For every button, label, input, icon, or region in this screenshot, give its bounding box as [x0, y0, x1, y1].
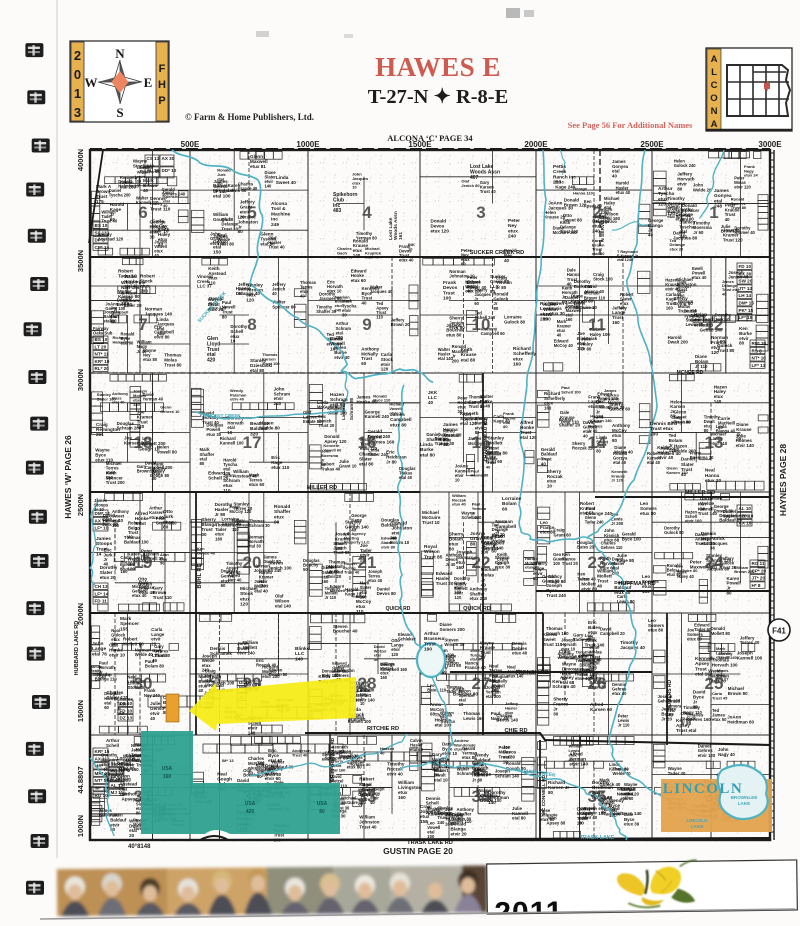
svg-text:6: 6	[138, 203, 147, 222]
svg-text:LF* 14: LF* 14	[95, 591, 109, 596]
svg-text:DennisGehresetux 40: DennisGehresetux 40	[612, 682, 627, 696]
svg-text:DouglasBates 20: DouglasBates 20	[577, 540, 595, 550]
svg-text:33: 33	[358, 787, 377, 806]
svg-text:VINCENT CREEK: VINCENT CREEK	[203, 413, 241, 418]
svg-text:CS 13: CS 13	[147, 156, 160, 161]
svg-text:WHIPPOORWILL RD: WHIPPOORWILL RD	[330, 737, 335, 782]
svg-text:18: 18	[134, 433, 153, 452]
svg-text:DennisGehresetux 40: DennisGehresetux 40	[512, 641, 528, 656]
svg-text:AL 15: AL 15	[147, 168, 160, 173]
svg-text:MILLER RD: MILLER RD	[307, 485, 337, 491]
svg-text:MichaelMcGuireTrust 10: MichaelMcGuireTrust 10	[422, 510, 441, 525]
svg-text:2: 2	[74, 48, 81, 63]
svg-text:F: F	[159, 63, 166, 75]
svg-text:LH 14: LH 14	[739, 293, 752, 298]
svg-text:7: 7	[138, 315, 147, 334]
svg-text:CalvinHasleretal 40: CalvinHasleretal 40	[410, 738, 424, 752]
svg-text:SherryJenichetvir 80: SherryJenichetvir 80	[449, 316, 465, 331]
svg-text:HAYNES PAGE 28: HAYNES PAGE 28	[778, 444, 788, 517]
svg-text:25: 25	[705, 674, 724, 693]
svg-text:TimothyDelangeetvir 100: TimothyDelangeetvir 100	[676, 207, 695, 222]
svg-text:PK* 15: PK* 15	[739, 308, 754, 313]
svg-text:AL 13: AL 13	[111, 783, 124, 788]
svg-text:1: 1	[709, 203, 718, 222]
svg-text:CH 13: CH 13	[95, 584, 108, 589]
svg-text:AL 10: AL 10	[739, 506, 752, 511]
svg-text:EdwardTader 60: EdwardTader 60	[694, 622, 712, 632]
svg-text:CHIE RD: CHIE RD	[505, 728, 528, 734]
svg-text:RS 8: RS 8	[752, 348, 763, 353]
svg-text:QUICK RD: QUICK RD	[463, 606, 491, 612]
svg-text:Lawrence: Lawrence	[341, 399, 346, 420]
svg-text:A: A	[711, 54, 718, 65]
svg-text:35: 35	[588, 787, 607, 806]
svg-text:3500N: 3500N	[76, 250, 85, 272]
svg-text:FD 10: FD 10	[739, 264, 752, 269]
svg-text:LF* 13: LF* 13	[752, 363, 766, 368]
svg-text:13: 13	[705, 433, 724, 452]
svg-text:NT* 11: NT* 11	[95, 352, 109, 357]
svg-text:2500N: 2500N	[76, 494, 85, 516]
svg-text:14: 14	[588, 433, 607, 452]
svg-text:USA: USA	[317, 801, 328, 807]
svg-text:AnthonyWelde 40: AnthonyWelde 40	[558, 651, 576, 660]
svg-text:C: C	[711, 80, 718, 91]
svg-text:RG 20: RG 20	[111, 768, 125, 773]
svg-text:1: 1	[74, 86, 81, 101]
svg-text:500E: 500E	[181, 140, 200, 149]
svg-text:KR* 15: KR* 15	[95, 749, 110, 754]
svg-text:2500E: 2500E	[640, 140, 664, 149]
svg-text:TRASK LAKE: TRASK LAKE	[580, 835, 615, 841]
svg-text:AX 10: AX 10	[95, 518, 108, 523]
svg-text:ArthurSchell: ArthurSchell	[106, 738, 120, 748]
svg-text:34: 34	[472, 787, 491, 806]
svg-text:USA: USA	[162, 766, 173, 772]
svg-text:4: 4	[362, 203, 372, 222]
svg-text:BS 10: BS 10	[95, 337, 108, 342]
svg-text:DM* 15: DM* 15	[739, 301, 755, 306]
svg-text:2000E: 2000E	[524, 140, 548, 149]
svg-text:21: 21	[358, 553, 377, 572]
svg-text:W: W	[85, 75, 98, 90]
svg-text:A: A	[711, 119, 718, 130]
svg-text:27: 27	[472, 674, 491, 693]
svg-text:40°8148: 40°8148	[128, 844, 151, 850]
svg-text:See Page 56 For Additional Nam: See Page 56 For Additional Names	[568, 120, 693, 130]
svg-text:N: N	[711, 106, 718, 117]
svg-text:44.8807: 44.8807	[76, 766, 85, 793]
svg-text:H* 8: H* 8	[752, 583, 761, 588]
svg-text:1000N: 1000N	[76, 815, 85, 837]
svg-text:LF* 15: LF* 15	[739, 315, 753, 320]
svg-text:2: 2	[592, 203, 601, 222]
svg-text:420: 420	[246, 809, 255, 815]
svg-text:LAKE: LAKE	[690, 824, 704, 830]
svg-text:WilliamRoczaketux 40: WilliamRoczaketux 40	[452, 493, 467, 507]
svg-text:LT 20: LT 20	[95, 344, 107, 349]
svg-text:9: 9	[362, 315, 371, 334]
svg-text:17: 17	[243, 433, 262, 452]
svg-text:TRASK LAKE RD: TRASK LAKE RD	[407, 840, 453, 846]
svg-text:USA: USA	[245, 801, 256, 807]
svg-text:RobertKarsenetal 40: RobertKarsenetal 40	[647, 451, 662, 465]
svg-text:HAWES E: HAWES E	[375, 52, 501, 82]
svg-text:RichardHaley 60: RichardHaley 60	[113, 335, 130, 344]
svg-text:AX 30: AX 30	[739, 271, 752, 276]
svg-text:24: 24	[705, 553, 724, 572]
svg-text:16: 16	[358, 433, 377, 452]
svg-text:AX 30: AX 30	[162, 156, 175, 161]
svg-text:HR* 10: HR* 10	[739, 513, 754, 518]
svg-text:LAKE: LAKE	[738, 801, 751, 806]
svg-text:30: 30	[134, 674, 153, 693]
svg-text:MCNEE RD: MCNEE RD	[677, 370, 704, 376]
svg-text:MichaelGebersetux 40: MichaelGebersetux 40	[132, 584, 147, 598]
svg-text:RobertKrameretal 53: RobertKrameretal 53	[580, 501, 596, 516]
svg-text:0: 0	[74, 67, 81, 82]
svg-text:FRENCH RD: FRENCH RD	[516, 670, 549, 676]
svg-text:LINCOLN: LINCOLN	[686, 818, 708, 824]
svg-text:DZ 10: DZ 10	[120, 701, 133, 706]
svg-text:N: N	[115, 46, 125, 61]
svg-text:RG 10: RG 10	[95, 793, 109, 798]
svg-text:SL 13: SL 13	[95, 230, 108, 235]
svg-text:ThomasTader 40: ThomasTader 40	[446, 685, 463, 695]
svg-text:BS 10: BS 10	[95, 223, 108, 228]
svg-text:3000N: 3000N	[76, 369, 85, 391]
svg-text:RP* 20: RP* 20	[752, 341, 767, 346]
svg-text:NT* 10: NT* 10	[752, 356, 767, 361]
svg-text:CP* 14: CP* 14	[95, 245, 110, 250]
svg-text:1500E: 1500E	[408, 140, 432, 149]
svg-text:JT* 20: JT* 20	[752, 576, 766, 581]
svg-text:3000E: 3000E	[758, 140, 782, 149]
svg-text:F41: F41	[772, 627, 786, 636]
svg-text:RonaldGorzyaetal 40: RonaldGorzyaetal 40	[613, 451, 628, 465]
svg-text:MC CONNELL RD: MC CONNELL RD	[541, 774, 547, 815]
svg-text:DianeBolamJr 110: DianeBolamJr 110	[695, 354, 709, 369]
svg-text:26: 26	[588, 674, 607, 693]
svg-text:AX 11: AX 11	[95, 756, 108, 761]
svg-text:NT* 15: NT* 15	[95, 778, 110, 783]
svg-text:GUSTIN PAGE 20: GUSTIN PAGE 20	[383, 846, 453, 856]
svg-text:1500N: 1500N	[76, 700, 85, 722]
svg-text:3: 3	[74, 105, 81, 120]
svg-text:IM* 13: IM* 13	[222, 758, 234, 763]
svg-text:11: 11	[588, 315, 606, 334]
svg-text:S: S	[116, 105, 123, 120]
svg-text:P: P	[158, 95, 165, 107]
svg-text:20: 20	[243, 553, 262, 572]
svg-text:DP 8: DP 8	[95, 238, 106, 243]
svg-text:SUCKER CREEK RD: SUCKER CREEK RD	[470, 250, 524, 256]
svg-text:RITCHIE RD: RITCHIE RD	[367, 726, 399, 732]
svg-text:E: E	[144, 75, 153, 90]
svg-text:H: H	[158, 79, 166, 91]
svg-text:QUICK RD: QUICK RD	[386, 606, 411, 612]
svg-text:12: 12	[705, 315, 724, 334]
svg-text:MJ 11: MJ 11	[111, 790, 124, 795]
svg-text:KR* 10: KR* 10	[95, 359, 110, 364]
svg-text:DZ 13: DZ 13	[120, 716, 133, 721]
svg-text:SW 20: SW 20	[739, 279, 753, 284]
svg-text:Schram 80: Schram 80	[349, 397, 354, 420]
svg-text:15: 15	[472, 433, 491, 452]
svg-text:22: 22	[472, 553, 491, 572]
svg-text:BUHL RD: BUHL RD	[197, 563, 203, 588]
svg-text:SOMERS RD: SOMERS RD	[667, 679, 673, 710]
svg-text:WayneKrameretvir 40: WayneKrameretvir 40	[582, 806, 597, 820]
svg-text:L: L	[711, 67, 717, 78]
svg-text:RG 11: RG 11	[752, 561, 765, 566]
svg-text:JT* 13: JT* 13	[739, 286, 753, 291]
svg-text:LINCOLN: LINCOLN	[663, 781, 744, 797]
svg-text:8: 8	[247, 315, 256, 334]
svg-text:DD* 10: DD* 10	[162, 168, 177, 173]
svg-text:160: 160	[163, 774, 172, 780]
svg-text:HAWES ‘W’ PAGE 26: HAWES ‘W’ PAGE 26	[63, 435, 73, 519]
svg-text:80: 80	[319, 809, 325, 815]
svg-text:O: O	[710, 93, 717, 104]
svg-text:GeraldYermanetux 80: GeraldYermanetux 80	[462, 746, 478, 760]
svg-text:SL 14: SL 14	[111, 761, 124, 766]
svg-text:AX 15: AX 15	[739, 521, 752, 526]
svg-text:WilliamMollett: WilliamMollett	[243, 640, 258, 650]
svg-text:FD 11: FD 11	[95, 599, 108, 604]
svg-text:© Farm & Home Publishers, Ltd.: © Farm & Home Publishers, Ltd.	[185, 112, 314, 122]
svg-text:HUFFMAN RD: HUFFMAN RD	[618, 581, 655, 587]
svg-text:23: 23	[588, 553, 607, 572]
svg-text:3: 3	[476, 203, 485, 222]
svg-text:RL* 20: RL* 20	[95, 366, 110, 371]
svg-text:5: 5	[247, 203, 256, 222]
svg-text:H* 10: H* 10	[111, 776, 123, 781]
svg-text:CP* 20: CP* 20	[752, 568, 767, 573]
svg-text:HUBBARD LAKE RD: HUBBARD LAKE RD	[74, 621, 80, 676]
svg-text:1000E: 1000E	[296, 140, 320, 149]
svg-text:FD 10: FD 10	[120, 708, 133, 713]
svg-text:4000N: 4000N	[76, 149, 85, 171]
svg-text:19: 19	[134, 553, 153, 572]
svg-text:GeorgeNey 160: GeorgeNey 160	[482, 541, 499, 551]
svg-text:LF* 10: LF* 10	[95, 526, 109, 531]
svg-text:28: 28	[358, 674, 377, 693]
svg-text:T-27-N ✦ R-8-E: T-27-N ✦ R-8-E	[368, 86, 509, 108]
svg-text:10: 10	[472, 315, 491, 334]
svg-text:MILLER RD: MILLER RD	[685, 490, 715, 496]
